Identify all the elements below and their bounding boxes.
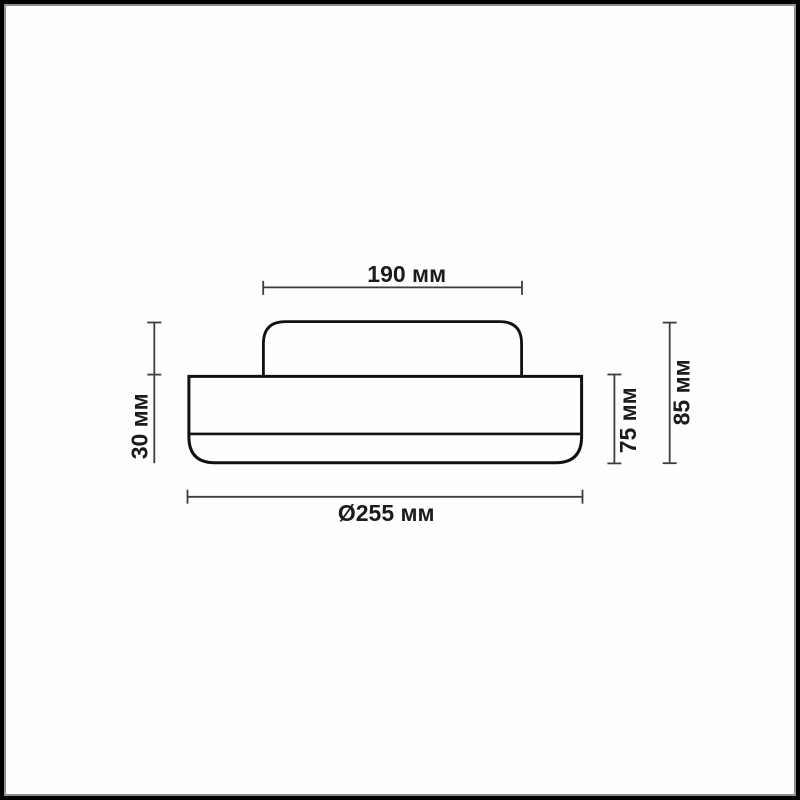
svg-text:85 мм: 85 мм [669,359,695,425]
svg-text:30 мм: 30 мм [127,393,153,459]
svg-text:75 мм: 75 мм [615,387,641,453]
svg-text:190 мм: 190 мм [367,261,446,287]
svg-text:Ø255 мм: Ø255 мм [338,500,435,526]
